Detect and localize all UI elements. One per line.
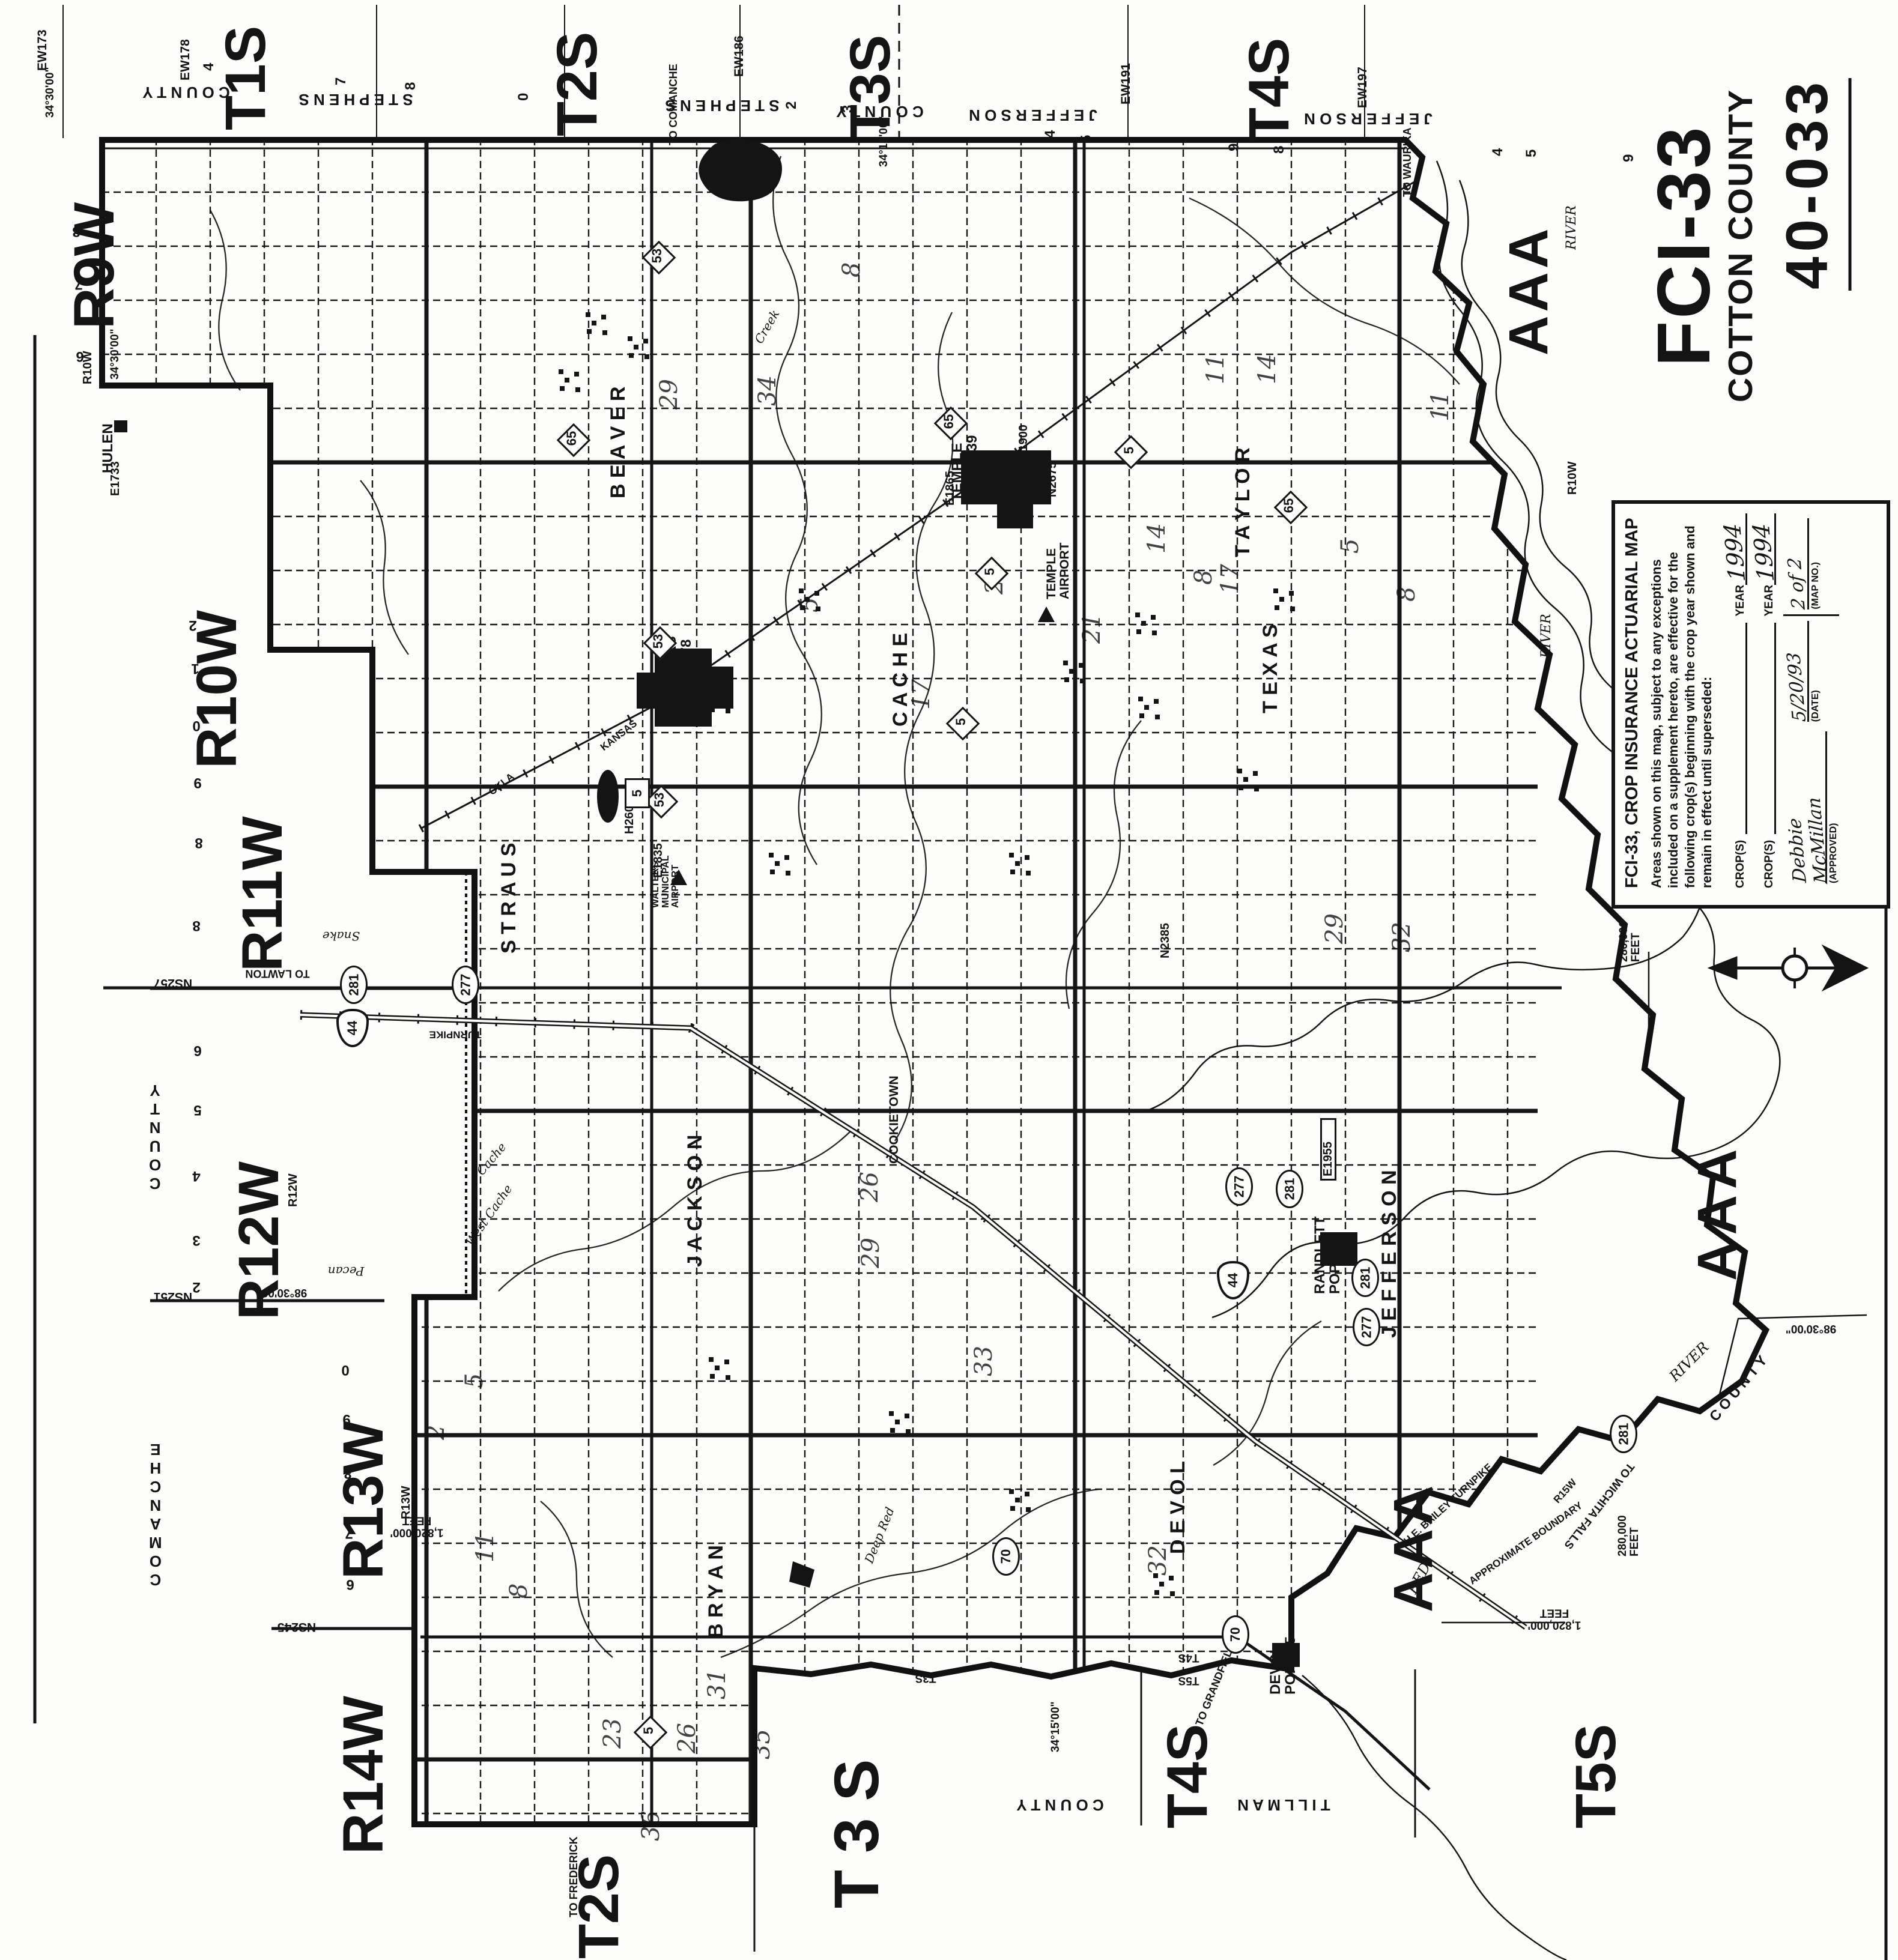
county-name-jefferson: J E F F E R S O N xyxy=(1290,110,1446,127)
section-number: 35 xyxy=(750,1721,775,1759)
edge-mile-number: 4 xyxy=(202,53,217,71)
county-name-diagonal: C O U N T Y xyxy=(1707,1337,1784,1424)
township-label-t1s: T1S xyxy=(216,1,276,130)
section-number: 26 xyxy=(858,1164,883,1202)
symbol-dot-cluster xyxy=(1009,853,1037,877)
civil-township-texas: T E X A S xyxy=(1260,515,1281,713)
section-number: 29 xyxy=(657,371,682,410)
section-number: 23 xyxy=(601,1710,626,1749)
interstate-shield-44: 44 xyxy=(336,1009,369,1047)
crop-value-line xyxy=(1763,623,1776,834)
state-plane-label: 1,820,000' FEET xyxy=(1518,1607,1590,1631)
road-ref-boxed: E1955 xyxy=(1320,1118,1336,1181)
road-ref: E1733 xyxy=(109,446,122,496)
civil-township-straus: S T R A U S xyxy=(499,695,520,954)
year-label: YEAR xyxy=(1763,585,1776,617)
info-box-content: FCI-33, CROP INSURANCE ACTUARIAL MAP Are… xyxy=(1615,504,1879,898)
area-label-aaa: AAA xyxy=(1500,235,1558,355)
edge-mile-number: 0 xyxy=(187,718,205,733)
civil-township-taylor: T A Y L O R xyxy=(1232,359,1254,557)
symbol-dot-cluster xyxy=(1153,1573,1181,1597)
us-highway-shield-281: 281 xyxy=(1276,1170,1303,1208)
county-name: C O U N T Y xyxy=(135,84,237,100)
sheet-number: 2 of 2 xyxy=(1784,557,1810,609)
river-label: RIVER xyxy=(1540,574,1554,658)
us-highway-shield-70: 70 xyxy=(992,1537,1020,1576)
symbol-dot-cluster xyxy=(1063,661,1091,685)
section-number: 17 xyxy=(1218,556,1243,594)
symbol-dot-cluster xyxy=(1273,588,1301,612)
section-number: 8 xyxy=(507,1560,532,1599)
county-name-tillman: T I L L M A N xyxy=(1219,1797,1348,1813)
civil-township-jefferson: J E F F E R S O N xyxy=(1379,1056,1400,1338)
section-number: 14 xyxy=(1255,346,1281,384)
symbol-dot-cluster xyxy=(1009,1489,1037,1513)
town-label-cookietown: COOKIETOWN xyxy=(888,1062,901,1164)
latitude-label: 34°15'00" xyxy=(1050,1674,1062,1752)
latitude-label: 34°30'00" xyxy=(109,301,121,380)
area-label-aaa: AAA xyxy=(1689,1122,1747,1281)
symbol-dot-cluster xyxy=(799,588,826,612)
edge-mile-number: 9 xyxy=(189,775,207,790)
edge-mile-number: 7 xyxy=(334,67,349,85)
civil-township-jackson: J A C K S O N xyxy=(685,1021,706,1267)
edge-mile-number: 8 xyxy=(1272,136,1287,154)
county-name-county-west: YTNUOC xyxy=(149,1081,161,1193)
us-highway-shield-277: 277 xyxy=(1353,1308,1380,1346)
edge-mile-number: 5 xyxy=(1524,139,1539,157)
edge-mile-number: 3 xyxy=(187,1232,205,1247)
symbol-dot-cluster xyxy=(709,691,736,715)
state-highway-shield-5: 5 xyxy=(1114,435,1145,466)
symbol-dot-cluster xyxy=(1237,769,1265,793)
temple-airport-label: TEMPLE AIRPORT xyxy=(1045,503,1072,599)
edge-mile-number: 5 xyxy=(1079,125,1094,143)
approval-date: 5/20/93 xyxy=(1783,652,1810,722)
edge-mile-number: 5 xyxy=(189,1102,207,1117)
section-number: 29 xyxy=(859,1230,884,1268)
edge-mile-number: 4 xyxy=(1043,120,1058,138)
grid-ref-ew: EW191 xyxy=(1120,32,1133,104)
symbol-dot-cluster xyxy=(889,1411,917,1435)
section-number: 17 xyxy=(909,671,935,710)
section-number: 11 xyxy=(473,1524,499,1562)
grid-ref-ns: NS257 xyxy=(148,976,198,990)
longitude-label: 98°30'00" xyxy=(1772,1322,1850,1334)
town-label-randlett: RANDLETT POP 481 xyxy=(1313,1192,1343,1294)
symbol-dot-cluster xyxy=(586,312,613,336)
civil-township-devol: D E V O L xyxy=(1168,1374,1189,1554)
road-ref: E1865 xyxy=(944,452,957,506)
creek-label-pecan: Pecan xyxy=(322,1265,370,1277)
destination-label: TO WAURIKA xyxy=(1402,113,1413,197)
edge-mile-number: 6 xyxy=(341,1576,359,1591)
edge-mile-number: 7 xyxy=(340,1525,358,1540)
range-tick: R12W xyxy=(287,1157,300,1207)
state-highway-shield-53: 53 xyxy=(641,240,673,271)
creek-label-deep-red: Deep Red xyxy=(863,1499,899,1565)
creek-label-snake: Snake xyxy=(317,930,365,942)
section-number: 31 xyxy=(705,1661,730,1699)
section-number: 21 xyxy=(1080,605,1105,644)
form-code: FCI-33 xyxy=(1647,23,1721,468)
route-box-5: 5 xyxy=(625,778,650,808)
railroad-label: KANSAS xyxy=(599,704,658,753)
state-highway-shield-65: 65 xyxy=(1273,490,1305,521)
info-box: FCI-33, CROP INSURANCE ACTUARIAL MAP Are… xyxy=(1611,500,1890,909)
edge-mile-number: 9 xyxy=(338,1411,356,1426)
state-highway-shield-5: 5 xyxy=(974,556,1005,587)
road-ref: N2385 xyxy=(1159,904,1172,958)
grid-ref-ew: EW186 xyxy=(733,5,746,77)
grid-ref-ew: EW178 xyxy=(179,14,192,80)
year-value: 1994 xyxy=(1750,522,1776,581)
range-tick: R10W xyxy=(1566,444,1579,495)
section-number: 32 xyxy=(1146,1537,1171,1576)
section-number: 8 xyxy=(840,239,865,277)
creek-label-west-cache: West Cache xyxy=(463,1177,518,1248)
range-label-r14w: R14W xyxy=(334,1674,393,1854)
edge-mile-number: 8 xyxy=(190,835,208,850)
year-label: YEAR xyxy=(1734,585,1747,617)
interstate-shield-44: 44 xyxy=(1217,1261,1249,1299)
state-highway-shield-65: 65 xyxy=(556,423,587,454)
info-box-title: FCI-33, CROP INSURANCE ACTUARIAL MAP xyxy=(1622,513,1642,888)
us-highway-shield-70: 70 xyxy=(1222,1615,1249,1654)
symbol-dot-cluster xyxy=(709,1357,736,1381)
us-highway-shield-277: 277 xyxy=(452,966,479,1004)
section-number: 8 xyxy=(1192,546,1217,585)
symbol-dot-cluster xyxy=(1138,697,1166,721)
edge-mile-number: 4 xyxy=(1491,138,1506,156)
map-labels-layer: T1ST2ST3ST4ST2ST3ST4ST5SR9WR10WR11WR12WR… xyxy=(0,0,1898,1960)
symbol-dot-cluster xyxy=(559,369,586,393)
edge-mile-number: 8 xyxy=(187,918,205,933)
destination-label: TO COMANCHE xyxy=(668,55,679,145)
us-highway-shield-281: 281 xyxy=(340,966,368,1004)
edge-mile-number: 2 xyxy=(784,91,799,109)
edge-mile-number: 1 xyxy=(186,661,204,676)
edge-mile-number: 0 xyxy=(517,83,532,101)
boundary-note: APPROXIMATE BOUNDARY xyxy=(1467,1481,1611,1586)
edge-mile-number: 4 xyxy=(187,1168,205,1183)
turnpike-label: TURNPIKE xyxy=(419,1029,491,1040)
section-number: 29 xyxy=(1323,906,1348,944)
symbol-dot-cluster xyxy=(1135,612,1163,637)
actuarial-map-page: T1ST2ST3ST4ST2ST3ST4ST5SR9WR10WR11WR12WR… xyxy=(0,0,1898,1960)
map-code: 40-033 xyxy=(1773,76,1845,289)
township-label-t5s: T5S xyxy=(1566,1681,1626,1828)
edge-mile-number: 8 xyxy=(67,223,85,238)
township-label-t3s-south: T3S xyxy=(824,1668,890,1908)
section-number: 2 xyxy=(424,1402,449,1440)
section-number: 11 xyxy=(1204,346,1229,384)
county-name-stephens: S T E P H E N S xyxy=(288,91,423,107)
approval-row: Debbie McMillan (APPROVED) 5/20/93 (DATE… xyxy=(1783,513,1839,888)
destination-label: TO FREDERICK xyxy=(568,1824,580,1917)
county-name: C O U N T Y xyxy=(1009,1797,1111,1813)
creek-label-cache: Cache xyxy=(474,1133,515,1178)
township-label-t2s: T2S xyxy=(548,1,607,136)
edge-mile-number: 9 xyxy=(1227,133,1242,151)
town-label-devol: DEVOL POP 155 xyxy=(1269,1605,1299,1695)
symbol-dot-cluster xyxy=(769,853,796,877)
state-highway-shield-5: 5 xyxy=(945,706,977,737)
year-value: 1994 xyxy=(1721,522,1747,581)
edge-mile-number: 6 xyxy=(189,1042,207,1057)
county-title: COTTON COUNTY xyxy=(1721,23,1761,468)
crop-row-1: CROP(S) YEAR 1994 xyxy=(1724,513,1747,888)
edge-mile-number: 8 xyxy=(404,72,419,90)
approved-signature: Debbie McMillan xyxy=(1777,731,1833,885)
township-tick: T4S xyxy=(1168,1651,1210,1663)
road-ref: D1900 xyxy=(1017,410,1030,460)
destination-label: TO LAWTON xyxy=(235,968,320,979)
grid-ref-ns: NS245 xyxy=(271,1620,322,1633)
range-label-r11w: R11W xyxy=(233,743,293,972)
section-number: 5 xyxy=(1338,515,1363,554)
us-highway-shield-281: 281 xyxy=(1610,1415,1637,1453)
edge-mile-number: 0 xyxy=(336,1362,354,1377)
crop-value-line xyxy=(1735,623,1747,834)
river-label: RIVER xyxy=(1565,178,1579,250)
section-number: 33 xyxy=(972,1338,997,1376)
symbol-dot-cluster xyxy=(628,336,655,360)
road-ref: N2675 xyxy=(1046,443,1059,497)
info-box-body: Areas shown on this map, subject to any … xyxy=(1648,513,1716,888)
section-number: 11 xyxy=(1428,383,1454,422)
township-tick: T5S xyxy=(1168,1674,1210,1686)
state-highway-shield-53: 53 xyxy=(643,626,674,657)
edge-mile-number: 2 xyxy=(184,617,202,632)
state-plane-label: 1,820,000' FEET xyxy=(381,1514,453,1538)
creek-label: Creek xyxy=(753,303,784,346)
section-number: 36 xyxy=(639,1803,664,1841)
section-number: 32 xyxy=(1390,914,1415,952)
latitude-label: 34°30'00" xyxy=(44,40,56,118)
civil-township-beaver: B E A V E R xyxy=(608,258,629,498)
date-label: (DATE) xyxy=(1810,621,1821,722)
civil-township-bryan: B R Y A N xyxy=(706,1434,727,1638)
edge-mile-number: 8 xyxy=(339,1465,357,1480)
grid-ref-ew: EW197 xyxy=(1356,36,1369,108)
section-number: 14 xyxy=(1145,515,1170,554)
longitude-label: 98°30'00" xyxy=(243,1286,321,1298)
state-plane-label: 280,000 FEET xyxy=(1617,1490,1641,1556)
section-number: 26 xyxy=(675,1715,700,1753)
range-label-r10w: R10W xyxy=(187,540,247,769)
county-name-jefferson: J E F F E R S O N xyxy=(955,107,1111,123)
crop-label: CROP(S) xyxy=(1763,840,1776,888)
latitude-label: 34°15'00" xyxy=(878,89,890,167)
map-no-label: (MAP NO.) xyxy=(1810,518,1821,609)
township-tick: T3S xyxy=(905,1672,947,1684)
edge-mile-number: 3 xyxy=(841,95,856,113)
section-number: 5 xyxy=(462,1350,488,1388)
red-river-label: RIVER xyxy=(1667,1327,1724,1384)
edge-mile-number: 9 xyxy=(1622,144,1637,162)
county-name-comanche: EHCNAMOC xyxy=(149,1440,162,1589)
crop-label: CROP(S) xyxy=(1734,840,1747,888)
range-tick: R13W xyxy=(400,1469,413,1519)
us-highway-shield-277: 277 xyxy=(1225,1167,1253,1206)
state-highway-shield-5: 5 xyxy=(633,1715,664,1746)
us-highway-shield-281: 281 xyxy=(1351,1259,1379,1297)
crop-row-2: CROP(S) YEAR 1994 xyxy=(1753,513,1776,888)
edge-mile-number: 7 xyxy=(70,276,88,291)
edge-mile-number: 6 xyxy=(71,348,89,363)
road-ref: E1835 xyxy=(652,827,665,878)
section-number: 34 xyxy=(756,367,781,406)
state-highway-shield-65: 65 xyxy=(933,406,965,437)
edge-mile-number: 2 xyxy=(187,1279,205,1294)
map-title-block: FCI-33 COTTON COUNTY xyxy=(1647,23,1790,468)
section-number: 8 xyxy=(1395,563,1420,602)
